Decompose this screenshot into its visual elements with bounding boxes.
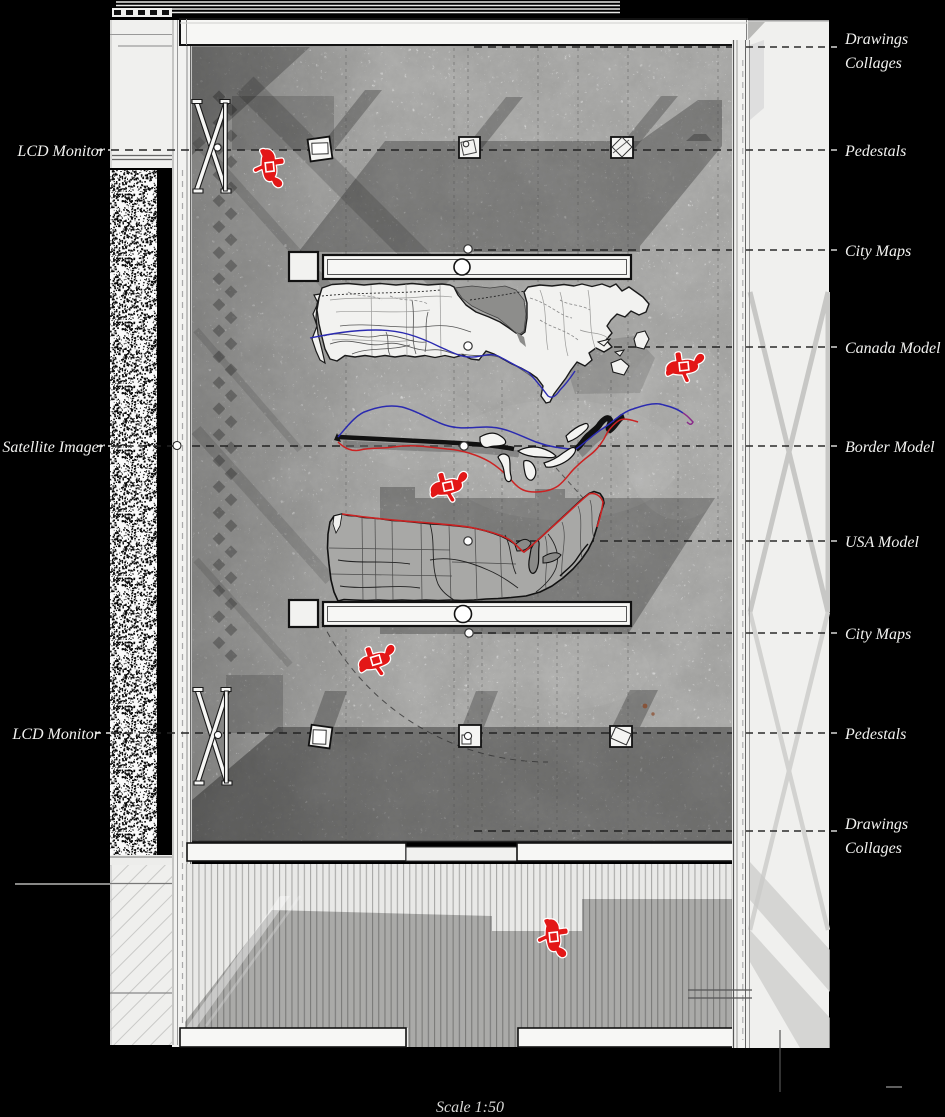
svg-text:Pedestals: Pedestals [844,143,906,160]
svg-text:Collages: Collages [845,55,902,72]
svg-text:LCD Monitor: LCD Monitor [11,726,100,743]
svg-text:Pedestals: Pedestals [844,726,906,743]
svg-text:LCD Monitor: LCD Monitor [16,143,105,160]
svg-text:City Maps: City Maps [845,243,911,260]
svg-text:Collages: Collages [845,840,902,857]
svg-text:Border Model: Border Model [845,439,935,456]
svg-text:Satellite Imager: Satellite Imager [2,439,105,456]
svg-text:USA Model: USA Model [845,534,919,551]
svg-text:City Maps: City Maps [845,626,911,643]
svg-text:Canada Model: Canada Model [845,340,941,357]
svg-text:Scale 1:50: Scale 1:50 [436,1099,504,1116]
svg-text:Drawings: Drawings [844,816,908,833]
svg-text:Drawings: Drawings [844,31,908,48]
